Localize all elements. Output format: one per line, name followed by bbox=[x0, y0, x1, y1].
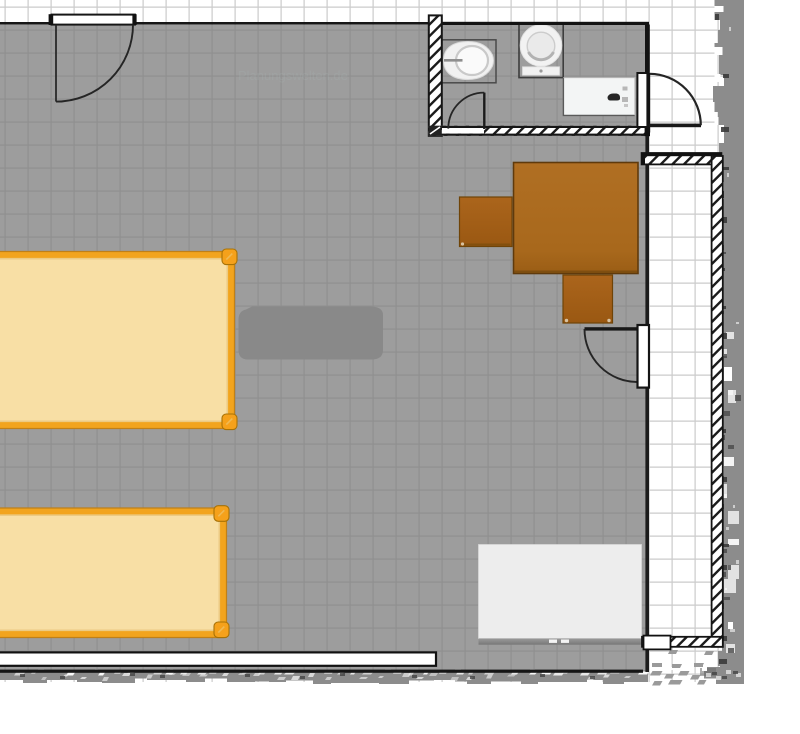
svg-text:Planungswelten.de: Planungswelten.de bbox=[238, 68, 348, 83]
